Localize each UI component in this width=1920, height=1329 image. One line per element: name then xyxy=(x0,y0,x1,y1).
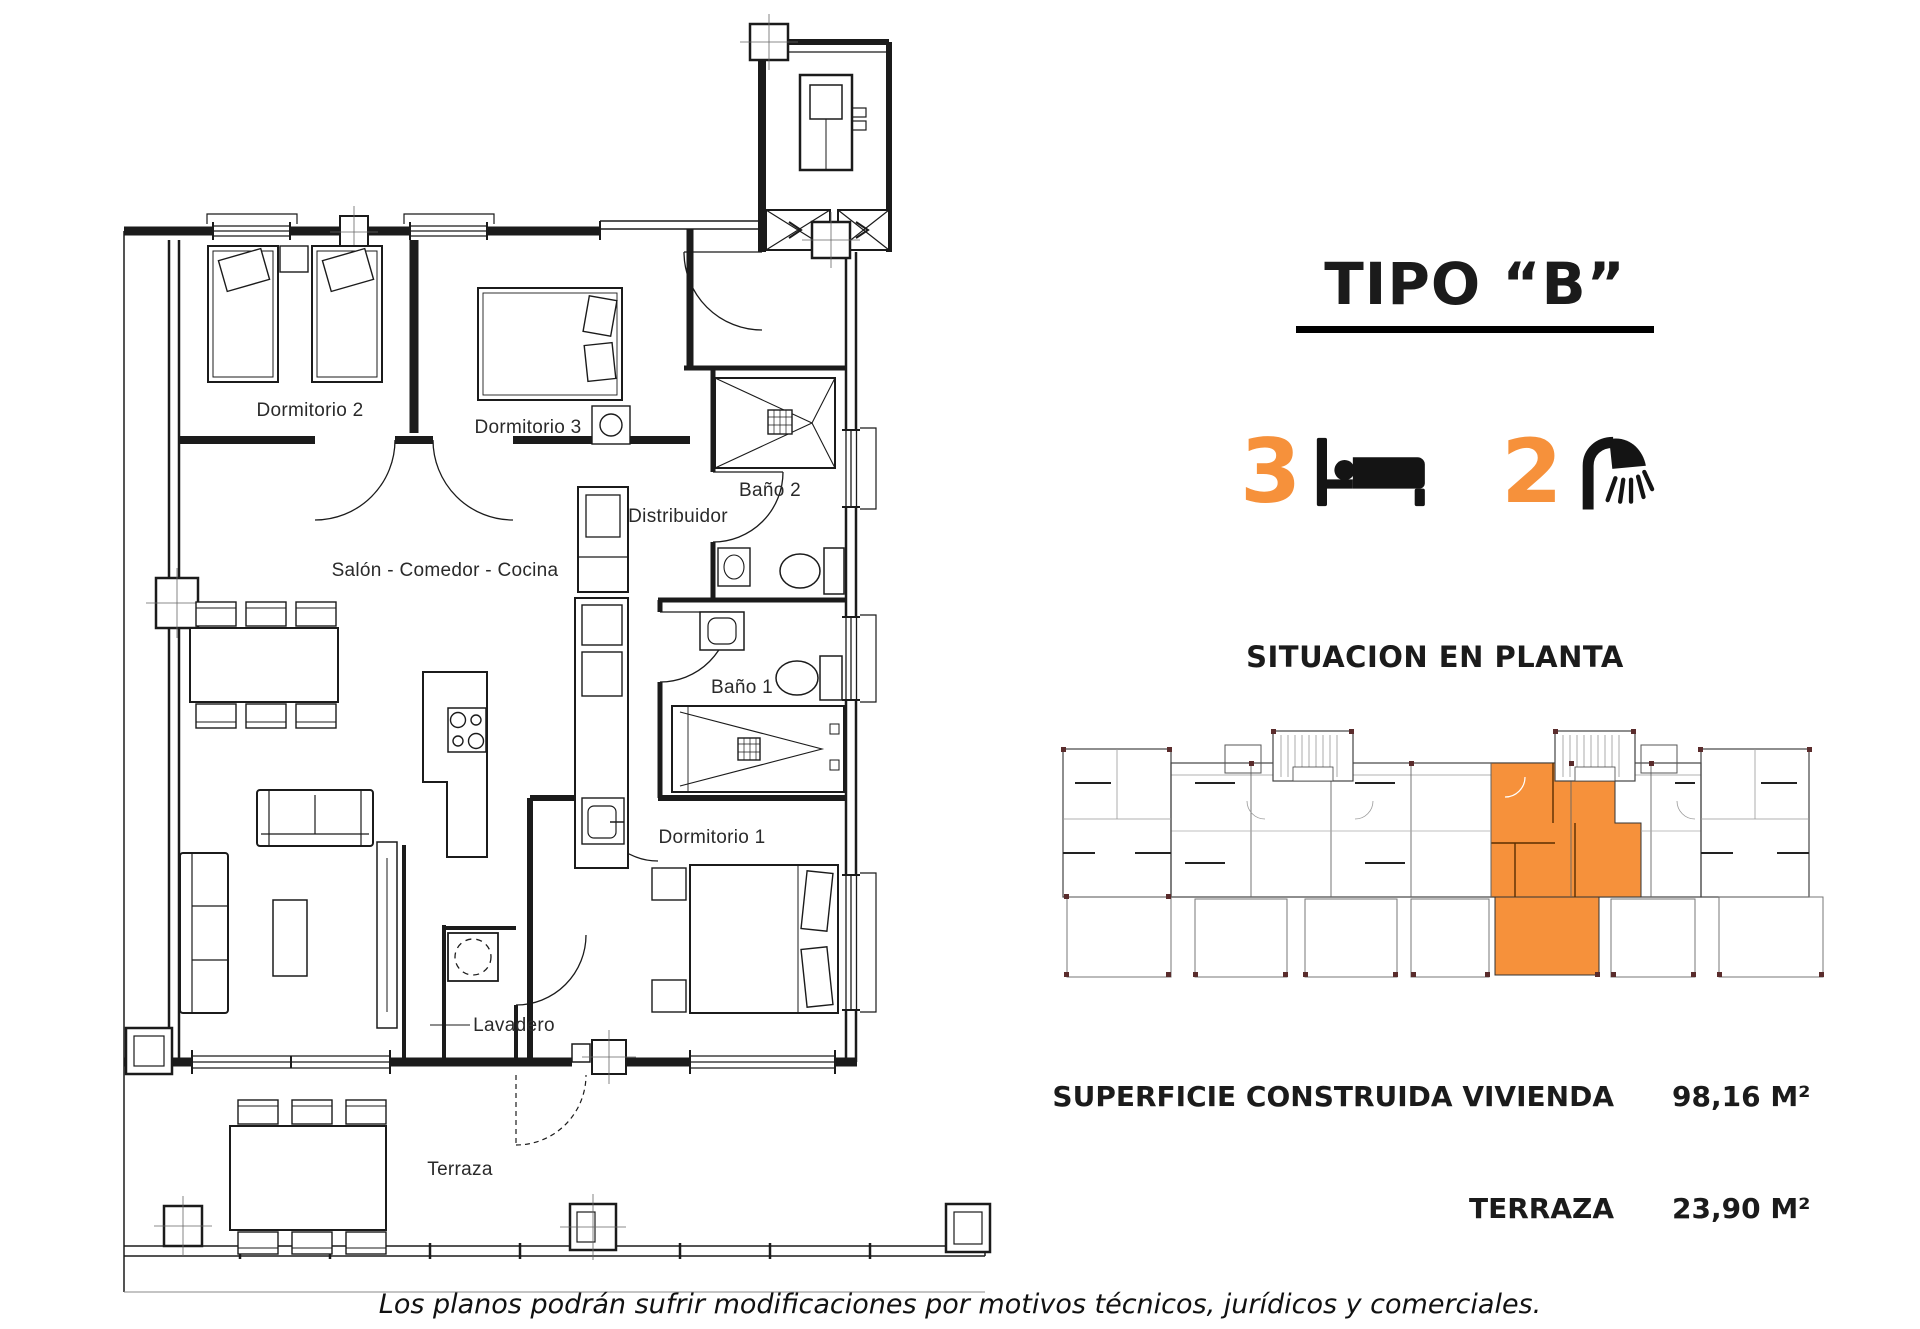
room-label-dormitorio-2: Dormitorio 2 xyxy=(256,400,363,422)
stair-core xyxy=(740,14,889,268)
room-label-bano-2: Baño 2 xyxy=(739,480,801,502)
area-row-terraza: TERRAZA 23,90 M² xyxy=(1050,1192,1860,1225)
shower-icon xyxy=(1578,427,1656,517)
room-label-bano-1: Baño 1 xyxy=(711,677,773,699)
highlighted-unit xyxy=(1491,763,1641,975)
area-label-terraza: TERRAZA xyxy=(1050,1192,1614,1225)
room-label-salon-comedor-cocina: Salón - Comedor - Cocina xyxy=(332,560,559,582)
area-value-vivienda: 98,16 M² xyxy=(1672,1080,1810,1113)
room-label-terraza: Terraza xyxy=(427,1159,492,1181)
room-label-distribuidor: Distribuidor xyxy=(628,506,728,528)
unit-type-title: TIPO “B” xyxy=(1296,250,1654,333)
apartment-floor-plan: Dormitorio 2 Dormitorio 3 Baño 2 Distrib… xyxy=(0,0,1000,1329)
situation-heading: SITUACION EN PLANTA xyxy=(1135,640,1735,674)
bed-icon xyxy=(1315,436,1435,508)
building-situation-plan xyxy=(1055,722,1835,1004)
area-label-vivienda: SUPERFICIE CONSTRUIDA VIVIENDA xyxy=(1050,1080,1614,1113)
bathroom-count: 2 xyxy=(1501,428,1562,516)
room-label-dormitorio-3: Dormitorio 3 xyxy=(474,417,581,439)
area-row-vivienda: SUPERFICIE CONSTRUIDA VIVIENDA 98,16 M² xyxy=(1050,1080,1860,1113)
terrace-elements xyxy=(124,1075,990,1292)
area-value-terraza: 23,90 M² xyxy=(1672,1192,1810,1225)
bedroom-count: 3 xyxy=(1240,428,1301,516)
room-label-lavadero: Lavadero xyxy=(473,1015,555,1037)
floorplan-sheet: Dormitorio 2 Dormitorio 3 Baño 2 Distrib… xyxy=(0,0,1920,1329)
floor-plan-drawing xyxy=(0,0,1000,1329)
unit-features: 3 2 xyxy=(1240,420,1656,524)
room-label-dormitorio-1: Dormitorio 1 xyxy=(658,827,765,849)
disclaimer-text: Los planos podrán sufrir modificaciones … xyxy=(0,1289,1920,1320)
